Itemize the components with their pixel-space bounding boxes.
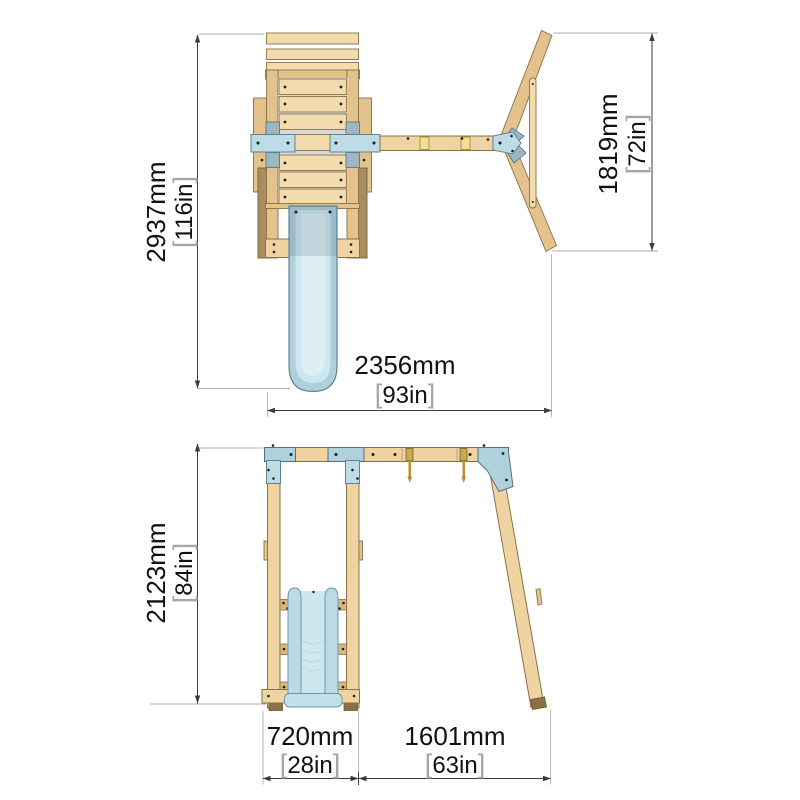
leg-foot <box>531 697 547 710</box>
dimension-value-inches: [116in] <box>168 176 198 248</box>
post-tab <box>359 541 363 560</box>
post-foot <box>269 703 283 711</box>
ladder-rung <box>267 33 359 44</box>
swing-beam-top <box>380 136 506 151</box>
dimension-label-front-tower-width: 720mm [28in] <box>267 721 354 779</box>
hook-tip <box>407 477 412 484</box>
hook-pin <box>463 461 466 477</box>
dimension-value-mm: 2123mm <box>141 522 171 623</box>
dimension-label-aframe-depth: 1819mm [72in] <box>593 93 651 194</box>
deck-slat <box>279 155 347 171</box>
swing-beam <box>380 136 506 151</box>
deck-slat <box>279 97 347 113</box>
platform-rim <box>266 70 360 79</box>
slide-top <box>289 206 337 392</box>
post-foot <box>344 703 358 711</box>
inches-value: 84in <box>171 550 198 595</box>
swing-leg-board <box>487 450 544 708</box>
top-beam <box>265 444 514 491</box>
ladder-rung <box>267 49 359 60</box>
slide-base <box>285 694 343 708</box>
swing-hook <box>460 449 467 484</box>
inches-value: 116in <box>171 184 198 241</box>
bracket-close: ] <box>428 379 436 409</box>
slide-front <box>285 588 343 707</box>
dimension-label-top-width: 2356mm [93in] <box>354 350 455 409</box>
bracket-close: ] <box>621 114 651 122</box>
hook-mount <box>460 449 467 461</box>
corner-bracket <box>266 153 280 168</box>
beam-plate <box>330 135 380 153</box>
bracket-close: ] <box>168 543 198 551</box>
front-view <box>262 444 547 710</box>
corner-bracket <box>266 122 280 135</box>
dimension-value-mm: 720mm <box>267 721 354 751</box>
corner-bracket <box>346 153 360 168</box>
ladder-top <box>266 33 360 79</box>
beam-bracket <box>328 448 364 462</box>
inches-value: 28in <box>287 752 332 779</box>
slide-bed <box>301 591 327 701</box>
hook-pin <box>409 461 412 477</box>
deck-slat <box>279 79 347 95</box>
hook-tip <box>461 477 466 484</box>
dimension-value-inches: [63in] <box>425 749 485 779</box>
swing-leg <box>487 450 547 710</box>
corner-bracket <box>346 122 360 135</box>
bracket-close: ] <box>478 749 486 779</box>
dimension-value-mm: 2937mm <box>141 161 171 262</box>
dimension-value-inches: [84in] <box>168 543 198 603</box>
post-tab <box>264 541 268 560</box>
slide-rail <box>325 588 338 701</box>
slide-rail <box>288 588 301 701</box>
deck-slat <box>279 114 347 130</box>
dimension-label-top-height: 2937mm [116in] <box>141 161 198 262</box>
dimension-value-mm: 1819mm <box>593 93 623 194</box>
dimension-value-mm: 2356mm <box>354 350 455 380</box>
slide-shadow <box>289 206 337 256</box>
a-frame-crossbar <box>530 78 537 208</box>
inches-value: 63in <box>432 752 477 779</box>
tower-post <box>347 460 360 708</box>
post-bracket <box>346 461 360 484</box>
leg-tab <box>536 589 542 606</box>
inches-value: 72in <box>624 121 651 166</box>
beam-board <box>265 448 509 462</box>
dimension-label-front-swing-width: 1601mm [63in] <box>404 721 505 779</box>
beam-spacer <box>420 137 429 150</box>
a-frame-top <box>493 31 557 252</box>
a-frame-leg <box>502 31 553 142</box>
top-view <box>251 31 557 392</box>
dimension-value-inches: [28in] <box>280 749 340 779</box>
deck-slat <box>279 189 347 205</box>
dimension-value-inches: [72in] <box>621 114 651 174</box>
hook-mount <box>406 449 413 461</box>
tower-post <box>268 460 281 708</box>
bracket-close: ] <box>333 749 341 779</box>
leg-bracket <box>478 448 513 492</box>
bracket-close: ] <box>168 176 198 184</box>
inches-value: 93in <box>382 382 427 409</box>
diagram-canvas: 2937mm [116in] 1819mm [72in] 2356mm [93i… <box>0 0 800 800</box>
swing-hook <box>406 449 413 484</box>
dimension-label-front-height: 2123mm [84in] <box>141 522 198 623</box>
dimension-value-inches: [93in] <box>375 379 435 409</box>
post-bracket <box>267 461 281 484</box>
dimension-value-mm: 1601mm <box>404 721 505 751</box>
deck-slat <box>279 172 347 188</box>
swing-set-diagram: 2937mm [116in] 1819mm [72in] 2356mm [93i… <box>0 0 800 800</box>
